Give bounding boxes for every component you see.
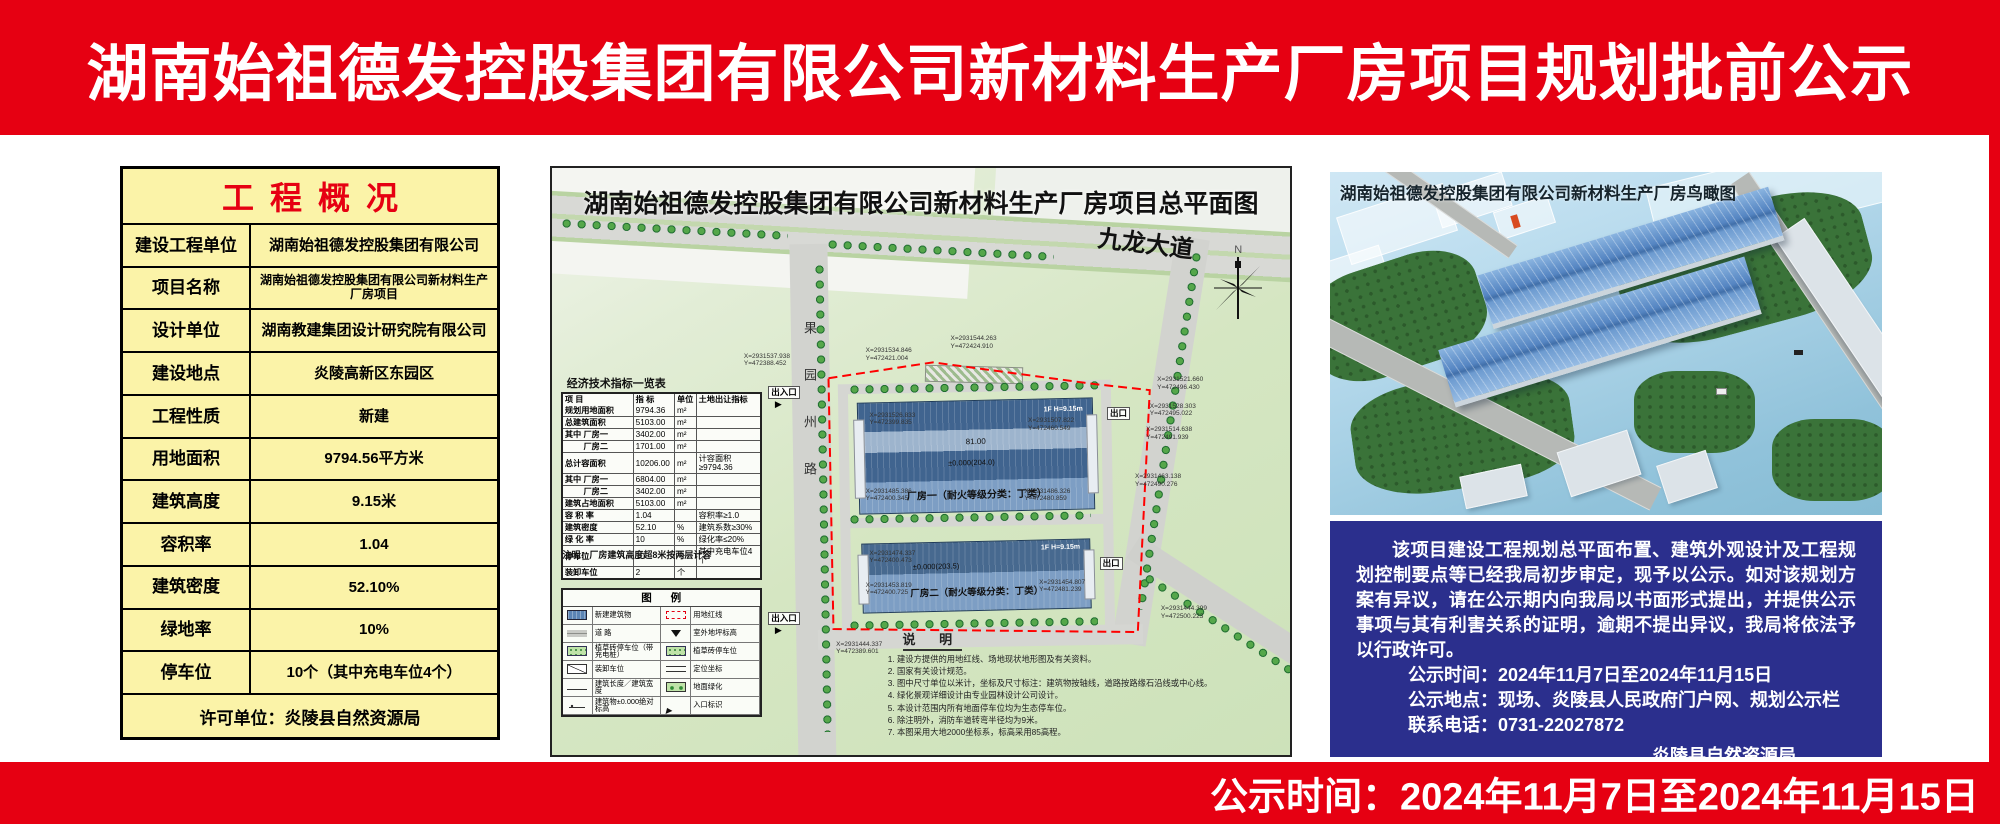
list-item: 1. 建设方提供的用地红线、场地现状地形图及有关资料。 — [888, 653, 1272, 665]
coordinate-label: X=2931474.337 Y=472400.473 — [869, 550, 915, 565]
entrance-label: 出入口 — [768, 612, 800, 625]
grass-parking-charge-icon — [563, 643, 593, 661]
coordinate-label: X=2931526.833 Y=472399.835 — [869, 412, 915, 427]
table-row: 项 目指 标单位土地出让指标 — [563, 394, 760, 405]
table-row: 停车位10个（其中充电车位4个） — [123, 652, 497, 695]
coordinate-label: X=2931453.819 Y=472400.725 — [866, 582, 912, 597]
road-icon — [563, 625, 593, 643]
table-row: 建设工程单位湖南始祖德发控股集团有限公司 — [123, 225, 497, 268]
entrance-label: 出入口 — [768, 386, 800, 399]
tree-grove — [1634, 371, 1755, 453]
legend-title: 图 例 — [563, 590, 760, 607]
table-row: 建筑密度52.10%建筑系数≥30% — [563, 522, 760, 534]
list-item: 2. 国家有关设计规范。 — [888, 665, 1272, 677]
notice-paragraph: 该项目建设工程规划总平面布置、建筑外观设计及工程规划控制要点等已经我局初步审定，… — [1356, 538, 1856, 663]
header-banner: 湖南始祖德发控股集团有限公司新材料生产厂房项目规划批前公示 — [0, 0, 2000, 135]
indicator-table-header: 项 目指 标单位土地出让指标 — [563, 394, 760, 405]
coordinate-label: X=2931537.938 Y=472388.452 — [744, 353, 790, 368]
legend-item-label: 装卸车位 — [593, 661, 661, 679]
table-row: 容 积 率1.04容积率≥1.0 — [563, 510, 760, 522]
abs-elev-icon — [563, 697, 593, 715]
aerial-rendering: 湖南始祖德发控股集团有限公司新材料生产厂房鸟瞰图 — [1330, 172, 1882, 515]
table-row: 建筑占地面积5103.00m² — [563, 498, 760, 510]
legend-grid: 新建建筑物用地红线道 路室外地坪标高植草砖停车位（带充电桩）植草砖停车位装卸车位… — [563, 607, 760, 715]
notes-title: 说 明 — [903, 629, 963, 651]
legend-item-label: 道 路 — [593, 625, 661, 643]
coordinate-label: X=2931444.337 Y=472389.601 — [836, 641, 882, 656]
entrance-arrow-icon — [775, 625, 782, 636]
greenery-icon — [661, 679, 691, 697]
legend-item-label: 室外地坪标高 — [691, 625, 759, 643]
table-row: 设计单位湖南教建集团设计研究院有限公司 — [123, 310, 497, 353]
table-row: 用地面积9794.56平方米 — [123, 439, 497, 482]
coordinate-label: X=2931507.822 Y=472460.549 — [1028, 417, 1074, 432]
project-overview-table: 工程概况 建设工程单位湖南始祖德发控股集团有限公司项目名称湖南始祖德发控股集团有… — [120, 166, 500, 740]
overview-rows: 建设工程单位湖南始祖德发控股集团有限公司项目名称湖南始祖德发控股集团有限公司新材… — [123, 225, 497, 695]
exit-label: 出口 — [1107, 407, 1130, 420]
neighbor-building — [1656, 450, 1717, 504]
coordinate-icon — [661, 661, 691, 679]
dimension-icon — [563, 679, 593, 697]
coordinate-label: X=2931534.846 Y=472421.004 — [866, 347, 912, 362]
legend-item-label: 植草砖停车位（带充电桩） — [593, 643, 661, 661]
right-edge-strip — [1989, 0, 2000, 824]
notice-box: 该项目建设工程规划总平面布置、建筑外观设计及工程规划控制要点等已经我局初步审定，… — [1330, 521, 1882, 757]
indicator-note: 注明：厂房建筑高度超8米按两层计容 — [562, 548, 711, 561]
table-row: 建筑密度52.10% — [123, 567, 497, 610]
list-item: 4. 绿化景观详细设计由专业园林设计公司设计。 — [888, 689, 1272, 701]
footer-publicity-period: 公示时间：2024年11月7日至2024年11月15日 — [1210, 766, 1979, 821]
table-row: 厂房二1701.00m² — [563, 441, 760, 453]
table-row: 绿地率10% — [123, 610, 497, 653]
site-plan-panel: 1F H=9.15m 81.00 ±0.000(204.0) 厂房一（耐火等级分… — [550, 166, 1292, 757]
legend-item-label: 植草砖停车位 — [691, 643, 759, 661]
legend-item-label: 入口标识 — [691, 697, 759, 715]
red-line-icon — [661, 607, 691, 625]
table-row: 总建筑面积5103.00m² — [563, 417, 760, 429]
overview-title: 工程概况 — [123, 169, 497, 225]
table-row: 绿 化 率10%绿化率≤20% — [563, 534, 760, 546]
table-row: 总计容面积10206.00m²计容面积≥9794.36 — [563, 453, 760, 474]
announcement-poster: 湖南始祖德发控股集团有限公司新材料生产厂房项目规划批前公示 工程概况 建设工程单… — [0, 0, 2000, 824]
coordinate-label: X=2931521.660 Y=472496.430 — [1157, 376, 1203, 391]
list-item: 5. 本设计范围内所有地面停车位均为生态停车位。 — [888, 702, 1272, 714]
coordinate-label: X=2931514.638 Y=472491.939 — [1146, 426, 1192, 441]
table-row: 厂房二3402.00m² — [563, 486, 760, 498]
grass-parking-icon — [661, 643, 691, 661]
legend-item-label: 建筑长度／建筑宽度 — [593, 679, 661, 697]
list-item: 3. 图中尺寸单位以米计，坐标及尺寸标注：建筑物按轴线，道路按路缘石沿线或中心线… — [888, 677, 1272, 689]
notice-time: 公示时间：2024年11月7日至2024年11月15日 — [1356, 663, 1856, 688]
coordinate-label: X=2931544.263 Y=472424.910 — [951, 335, 997, 350]
entrance-arrow-icon — [775, 399, 782, 410]
table-row: 装卸车位2个 — [563, 567, 760, 578]
legend-item-label: 定位坐标 — [691, 661, 759, 679]
footer-banner: 公示时间：2024年11月7日至2024年11月15日 — [0, 762, 2000, 824]
notice-phone: 联系电话：0731-22027872 — [1356, 713, 1856, 738]
legend-item-label: 用地红线 — [691, 607, 759, 625]
exit-label: 出口 — [1100, 557, 1123, 570]
legend: 图 例 新建建筑物用地红线道 路室外地坪标高植草砖停车位（带充电桩）植草砖停车位… — [561, 588, 762, 717]
table-row: 项目名称湖南始祖德发控股集团有限公司新材料生产厂房项目 — [123, 268, 497, 311]
entrance-icon — [661, 697, 691, 715]
ground-elev-icon — [661, 625, 691, 643]
coordinate-label: X=2931444.399 Y=472500.223 — [1161, 605, 1207, 620]
aerial-title: 湖南始祖德发控股集团有限公司新材料生产厂房鸟瞰图 — [1340, 180, 1736, 204]
notes-list: 1. 建设方提供的用地红线、场地现状地形图及有关资料。2. 国家有关设计规范。3… — [888, 653, 1272, 738]
overview-footer: 许可单位：炎陵县自然资源局 — [123, 695, 497, 737]
list-item: 7. 本图采用大地2000坐标系，标高采用85高程。 — [888, 726, 1272, 738]
car — [1716, 388, 1727, 395]
notice-place: 公示地点：现场、炎陵县人民政府门户网、规划公示栏 — [1356, 688, 1856, 713]
indicator-table-title: 经济技术指标一览表 — [567, 375, 666, 394]
list-item: 6. 除注明外，消防车道转弯半径均为9米。 — [888, 714, 1272, 726]
legend-item-label: 地面绿化 — [691, 679, 759, 697]
page-title: 湖南始祖德发控股集团有限公司新材料生产厂房项目规划批前公示 — [86, 23, 1913, 113]
coordinate-label: X=2931528.303 Y=472495.022 — [1150, 403, 1196, 418]
legend-item-label: 建筑物±0.000绝对标高 — [593, 697, 661, 715]
new-building-icon — [563, 607, 593, 625]
legend-item-label: 新建建筑物 — [593, 607, 661, 625]
table-row: 其中 厂房一3402.00m² — [563, 429, 760, 441]
coordinate-label: X=2931486.326 Y=472480.859 — [1024, 488, 1070, 503]
table-row: 建设地点炎陵高新区东园区 — [123, 353, 497, 396]
loading-space-icon — [563, 661, 593, 679]
table-row: 容积率1.04 — [123, 524, 497, 567]
table-row: 规划用地面积9794.36m² — [563, 405, 760, 417]
coordinate-label: X=2931454.807 Y=472481.239 — [1039, 579, 1085, 594]
table-row: 工程性质新建 — [123, 396, 497, 439]
table-row: 建筑高度9.15米 — [123, 481, 497, 524]
coordinate-label: X=2931463.138 Y=472490.276 — [1135, 473, 1181, 488]
coordinate-label: X=2931485.386 Y=472400.345 — [866, 488, 912, 503]
car — [1794, 350, 1803, 355]
tree-grove — [1772, 419, 1882, 501]
table-row: 其中 厂房一6804.00m² — [563, 474, 760, 486]
